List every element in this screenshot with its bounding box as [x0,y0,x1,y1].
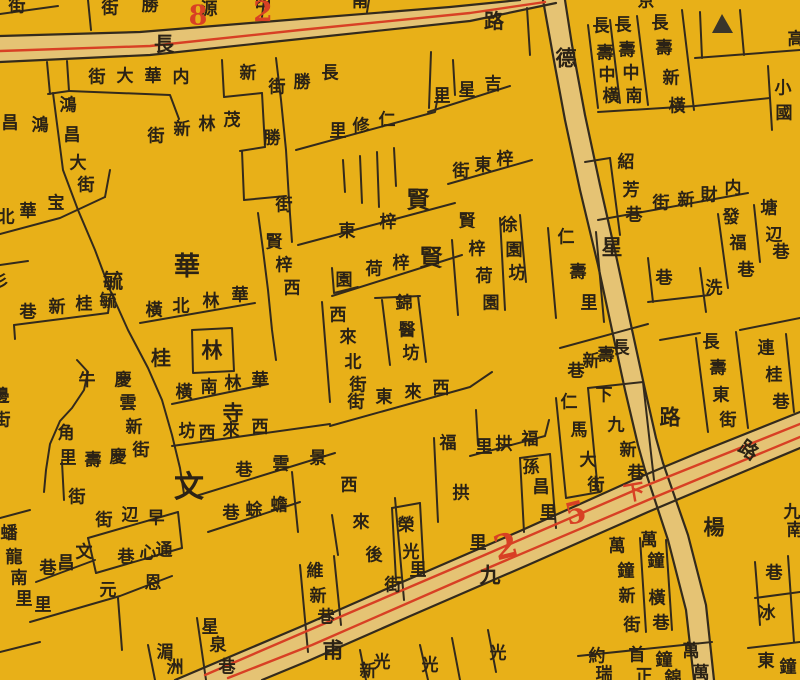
map-label-xiajiupu-road: 甫 [323,640,344,661]
map-label-wanzhong-xinjie: 萬 [609,539,626,556]
map-line [332,515,338,555]
map-label-qingshou-li: 里 [60,451,77,468]
map-label-rongguang-li: 里 [410,563,427,580]
map-label-xiaoguo-cut: 小 [775,81,792,98]
map-line [788,556,794,642]
map-line [14,325,15,339]
map-line [556,398,566,498]
map-label-xilai-houjie: 來 [353,515,370,532]
map-label-hualin-beiheng: 橫 [146,303,163,320]
map-label-hongchang-dajie: 昌 [64,128,81,145]
map-label-qingshou-li: 壽 [85,453,102,470]
map-label-xilai-xi-fang: 西 [199,426,216,443]
map-label-yugui-xinxiang: 毓 [100,294,117,311]
map-label-liangui-xiang: 巷 [773,395,790,412]
map-label-changshou-dongjie: 壽 [710,361,727,378]
map-line [695,50,800,58]
map-line [452,240,458,315]
map-label-bottom-center-cut: 光 [422,658,439,675]
map-label-hongchang-dajie: 大 [70,156,87,173]
map-label-wanzhong-xinjie: 新 [619,589,636,606]
map-label-renma-dajie: 大 [580,453,597,470]
map-line [740,10,744,55]
map-label-wanzhong-hengxiang: 鐘 [648,554,665,571]
map-label-wanzhong-xinjie: 鐘 [618,564,635,581]
map-label-zaobian-jie: 早 [148,511,165,528]
map-label-weixin-xiang: 維 [307,564,324,581]
map-label-enyuan-li: 元 [100,583,117,600]
map-line [394,148,396,186]
map-label-changshou-xinheng: 新 [663,71,680,88]
map-label-changshou-xinheng: 長 [652,16,669,33]
map-label-hongchang-dajie: 街 [78,178,95,195]
map-label-jingyun-xiang: 雲 [273,457,290,474]
map-label-jixing-li: 吉 [485,77,502,94]
map-label-tangbian-xiang: 塘 [761,201,778,218]
map-label-shaofang-xiang: 芳 [623,183,640,200]
map-label-xuyuan-fang: 徐 [501,218,518,235]
map-label-chanchu-xiang: 蜍 [246,503,263,520]
map-label-panlong-nan: 里 [16,592,33,609]
map-line [0,642,40,652]
map-label-xianzi-heyuan-h: 梓 [393,256,410,273]
map-label-chanchu-xiang: 巷 [223,506,240,523]
map-label-wenchang-xiang: 昌 [58,556,75,573]
map-label-hualin-nanheng: 華 [252,373,269,390]
map-label-zidong-jie: 街 [453,164,470,181]
map-label-tangbian-xiang: 巷 [773,245,790,262]
map-label-zidong-jie: 東 [475,158,492,175]
map-line [588,25,598,108]
map-label-tongxin-xiang: 通 [156,543,173,560]
map-label-bottom-row-cut: 萬 [693,666,710,680]
map-line [754,205,760,262]
map-label-sunchang-li: 里 [540,506,557,523]
map-label-xilai-houjie: 後 [366,548,383,565]
map-label-maolin-xinjie: 新 [174,122,191,139]
map-label-renma-dajie: 仁 [561,395,578,412]
map-label-xianzi-dong: 東 [339,224,356,241]
map-label-xilai-houjie: 西 [341,478,358,495]
map-label-shaofang-xiang: 紹 [618,155,635,172]
map-line [343,160,345,192]
map-label-jinyi-fang: 錦 [396,296,413,313]
map-canvas: 街街勝源西甫京高長路德星路九甫楊路街大華内昌鴻鴻昌大街北華宝街新林茂新街勝長勝街… [0,0,800,680]
map-label-changshou-road: 路 [484,11,504,31]
map-line [298,203,455,245]
map-label-xiajiu-xinxiang: 九 [608,418,625,435]
map-label-xianzi-dong: 梓 [380,215,397,232]
map-line [527,8,530,55]
map-label-bottom-row-cut: 錦 [665,671,682,680]
map-label-yugui-xinxiang: 新 [49,300,66,317]
map-label-qingyun-xinjie: 慶 [115,373,132,390]
map-label-xuyuan-fang: 坊 [509,266,526,283]
map-label-wanzhong-hengxiang: 橫 [649,591,666,608]
map-label-hualin-beiheng: 林 [203,294,220,311]
map-label-liangui-xiang: 連 [758,341,775,358]
map-line [434,438,438,522]
map-label-zaobian-jie: 辺 [122,508,139,525]
map-line [755,592,800,598]
map-label-chanchu-xiang: 蟾 [271,498,288,515]
map-label-xianzi-heyuan-h: 園 [336,273,353,290]
map-label-qingshou-li: 慶 [110,450,127,467]
map-label-neihua-dajie: 華 [145,69,162,86]
map-label-left-cut-2: 街 [0,413,11,430]
map-label-bottom-right-cut: 東 [758,654,775,671]
map-label-xianzi-heyuan-h: 荷 [366,262,383,279]
map-label-fugong-li-h: 拱 [496,437,513,454]
map-label-neihua-dajie: 大 [117,69,134,86]
map-label-wen-big: 文 [174,473,204,503]
landmark-triangle [712,14,733,33]
map-label-enyuan-li: 恩 [145,576,162,593]
map-label-hualin-nanheng: 南 [201,380,218,397]
map-label-jingyun-xiang: 巷 [236,463,253,480]
map-label-renma-dajie: 馬 [571,423,588,440]
map-line [0,510,30,518]
map-label-left-cut-2: 邊 [0,389,10,406]
map-label-xilai-beijie: 來 [340,330,357,347]
map-line [682,10,694,110]
map-label-sheng-jie-fragment: 勝 [264,131,281,148]
map-label-baohua-bei: 華 [20,204,37,221]
map-label-xianzi-heyuan-v: 梓 [469,242,486,259]
map-label-wenchang-xiang: 巷 [40,561,57,578]
map-label-xianzi-heyuan-v: 賢 [459,214,476,231]
map-label-changshou-xinxiang: 長 [613,341,630,358]
map-line [67,61,69,91]
map-label-xilai-xi-fang: 坊 [179,424,196,441]
map-line [224,93,262,97]
map-label-changshou-zhongnan: 長 [615,18,632,35]
map-label-xilai-houjie: 街 [385,578,402,595]
map-label-jie-fragment: 街 [69,490,86,507]
map-label-bottom-row-cut: 正 [636,669,653,680]
map-label-rongguang-li: 榮 [398,518,415,535]
map-label-tongxin-xiang: 心 [140,546,157,563]
map-label-niujiao: 牛 [79,373,96,390]
map-label-hualinsi-lin: 林 [202,340,223,361]
map-label-xilai-beijie: 西 [330,308,347,325]
map-line [178,512,182,548]
map-line [453,60,455,95]
map-label-fafu-xiang: 福 [730,236,747,253]
map-line [429,52,431,108]
map-label-yugui-xinxiang: 桂 [76,297,93,314]
map-label-xianzi-heyuan-v: 荷 [476,269,493,286]
map-label-changshou-zhongheng: 壽 [597,46,614,63]
map-label-xingquan-xiang: 泉 [210,638,227,655]
map-label-xi-fragment: 洗 [706,281,723,298]
map-label-fugong-li-h: 里 [476,440,493,457]
map-label-xiajiu-xinxiang: 下 [596,388,613,405]
map-label-renma-dajie: 街 [588,478,605,495]
map-label-dexing-road: 德 [556,48,577,69]
map-label-fugong-li-h: 福 [522,432,539,449]
map-line [222,60,224,97]
map-line [240,147,265,151]
map-line [748,642,800,648]
map-label-xiaoguo-cut: 國 [776,106,793,123]
map-label-fugong-li-v: 福 [440,436,457,453]
map-label-dexing-road: 星 [602,237,623,258]
map-label-changshou-dongjie: 街 [720,413,737,430]
map-label-bottom-row: 萬 [683,644,700,661]
map-label-hongchang-cut: 昌 [2,116,19,133]
map-line [48,91,69,94]
map-label-xian-big-1: 賢 [407,189,430,212]
map-label-panlong-nan: 南 [11,571,28,588]
map-label-xilai-dongjie: 西 [433,381,450,398]
map-label-baohua-bei: 北 [0,210,15,227]
map-label-xiajiu-xinxiang: 新 [620,443,637,460]
map-label-changshou-xinheng: 壽 [656,41,673,58]
map-label-baohua-bei: 宝 [48,196,65,213]
map-label-changshou-xinheng: 橫 [669,99,686,116]
map-label-sunchang-li: 昌 [533,480,550,497]
map-line [148,645,155,680]
map-label-right-edge-cut: 九 [784,505,800,522]
map-label-xiang-fragment-2: 巷 [766,566,783,583]
map-label-xiajiupu-road: 九 [480,565,501,586]
map-label-xilai-dongjie: 東 [376,390,393,407]
map-label-sunchang-li: 孫 [523,460,540,477]
map-label-renshou-li: 壽 [570,265,587,282]
map-label-bottom-row-cut: 瑞 [596,667,613,680]
map-label-jingyun-xiang: 景 [310,451,327,468]
map-line [47,62,50,94]
map-label-changsheng-xinjie: 長 [322,66,339,83]
map-label-enyuan-li: 里 [35,598,52,615]
map-label-hualinsi-si: 寺 [223,403,244,424]
map-line [548,228,556,318]
map-line [648,258,653,302]
map-label-right-edge-cut: 南 [787,523,800,540]
map-label-hualin-nanheng: 林 [225,376,242,393]
map-label-panlong-nan: 蟠 [1,526,18,543]
map-label-changshou-zhongnan: 壽 [619,43,636,60]
map-label-tongxin-xiang: 巷 [118,550,135,567]
map-label-changshou-zhongnan: 南 [626,89,643,106]
map-label-cut-jie-1: 街 [9,0,26,16]
map-label-wanzhong-hengxiang: 巷 [653,616,670,633]
map-label-cut-jing: 京 [638,0,655,11]
map-label-bottom-row: 鐘 [656,653,673,670]
map-line [660,333,700,340]
map-label-zidong-jie: 梓 [497,152,514,169]
map-label-fafu-xiang: 發 [723,210,740,227]
map-line [88,0,91,30]
map-label-weixin-xiang: 新 [310,589,327,606]
map-line [69,91,179,119]
map-label-neicai-xinjie: 新 [678,193,695,210]
map-label-meizhou: 洲 [167,660,184,677]
map-label-wenchang-xiang: 文 [76,545,93,562]
map-label-xianzi-xi: 梓 [276,258,293,275]
map-label-bottom-row: 首 [629,648,646,665]
map-label-dexing-road: 路 [660,407,681,428]
map-label-niujiao: 角 [58,426,75,443]
map-label-renxiu-li: 修 [353,119,370,136]
map-label-qingyun-xinjie: 街 [133,443,150,460]
map-label-bottom-row: 約 [589,649,606,666]
map-label-changsheng-xinjie: 勝 [294,75,311,92]
map-label-bing-fragment: 冰 [759,606,776,623]
map-label-xilai-beijie: 北 [345,355,362,372]
map-label-xilai-dongjie: 街 [348,395,365,412]
map-label-xilai-xi-fang: 西 [252,420,269,437]
map-label-yangxiang-road: 楊 [704,517,725,538]
map-label-xiang-fragment: 巷 [656,271,673,288]
map-label-rongguang-li: 光 [403,545,420,562]
map-label-wanzhong-hengxiang: 萬 [641,533,658,550]
map-label-xianzi-xi: 西 [284,281,301,298]
map-label-xianzi-heyuan-v: 園 [483,296,500,313]
map-label-yugui-xinxiang: 巷 [20,305,37,322]
map-line [452,638,460,680]
map-label-changshou-dongjie: 長 [703,335,720,352]
map-label-neicai-xinjie: 内 [725,181,742,198]
map-label-hongchang-dajie: 鴻 [60,98,77,115]
map-label-qingyun-xinjie: 雲 [120,396,137,413]
route-number: 2 [253,0,272,26]
map-label-zaobian-jie: 街 [96,513,113,530]
map-label-fugong-li-v: 拱 [453,486,470,503]
map-line [640,538,646,632]
map-label-bottom-center-cut: 光 [374,655,391,672]
map-label-bottom-center-cut: 光 [490,646,507,663]
map-line [242,151,244,200]
map-label-xian-big-2: 賢 [420,247,443,270]
map-label-jixing-li: 星 [459,83,476,100]
map-label-hualin-nanheng: 橫 [176,385,193,402]
map-label-left-cut-1: 彡 [0,275,10,292]
map-label-renxiu-li: 里 [330,124,347,141]
map-label-yugui-road: 桂 [151,348,171,368]
map-label-jixing-li: 里 [434,89,451,106]
route-number: 8 [189,3,208,30]
map-label-renxiu-li: 仁 [379,113,396,130]
map-label-xilai-dongjie: 來 [405,385,422,402]
map-label-hualin-beiheng: 華 [232,288,249,305]
map-label-jinyi-fang: 醫 [399,323,416,340]
map-line [392,508,396,580]
map-label-weixin-xiang: 巷 [318,610,335,627]
map-label-xingquan-xiang: 巷 [219,660,236,677]
map-label-qingyun-xinjie: 新 [126,420,143,437]
map-line [736,332,748,428]
map-label-neicai-xinjie: 財 [701,188,718,205]
map-label-changsheng-xinjie: 新 [240,66,257,83]
map-label-maolin-xinjie: 街 [148,129,165,146]
map-label-shaofang-xiang: 巷 [626,208,643,225]
map-line [360,156,362,203]
map-label-maolin-xinjie: 林 [199,117,216,134]
map-line [105,170,110,197]
map-line [0,261,28,265]
map-label-neihua-dajie: 内 [173,70,190,87]
route-number: 下 [622,480,646,504]
map-label-fugong-li-v: 里 [470,536,487,553]
map-label-renshou-li: 仁 [558,230,575,247]
map-label-neicai-xinjie: 街 [653,196,670,213]
map-label-panlong-nan: 龍 [6,550,23,567]
map-label-cut-sheng: 勝 [142,0,159,15]
map-label-maolin-xinjie: 茂 [224,113,241,130]
map-line [118,598,122,650]
map-label-changshou-zhongheng: 中 [599,68,616,85]
map-label-xingquan-xiang: 星 [202,620,219,637]
map-label-changshou-road: 長 [154,34,174,54]
map-label-liangui-xiang: 桂 [766,368,783,385]
map-label-jinyi-fang: 坊 [403,346,420,363]
map-label-hongchang-cut: 鴻 [32,118,49,135]
map-label-cut-pu: 甫 [352,0,369,11]
map-line [377,152,379,207]
map-label-changshou-zhongheng: 橫 [603,89,620,106]
map-label-cut-gao: 高 [788,32,800,49]
map-label-xianzi-xi: 賢 [266,235,283,252]
map-label-changshou-zhongheng: 長 [593,19,610,36]
map-label-bottom-right-cut: 鐘 [780,660,797,677]
map-line [740,318,800,330]
map-label-fafu-xiang: 巷 [738,263,755,280]
map-label-changshou-zhongnan: 中 [623,66,640,83]
map-label-hualinsi-hua: 華 [174,254,200,280]
map-label-sheng-jie-fragment: 街 [276,198,293,215]
map-label-renshou-li: 里 [581,296,598,313]
map-line [700,12,702,58]
map-label-changshou-dongjie: 東 [713,388,730,405]
map-label-changsheng-xinjie: 街 [269,80,286,97]
map-line [382,300,390,365]
map-label-wanzhong-xinjie: 街 [624,618,641,635]
map-label-cut-jie-2: 街 [102,1,119,18]
map-label-yugui-road: 毓 [103,271,123,291]
map-label-hualin-beiheng: 北 [173,299,190,316]
map-label-neihua-dajie: 街 [89,70,106,87]
map-label-xuyuan-fang: 園 [506,243,523,260]
map-line [648,295,710,302]
